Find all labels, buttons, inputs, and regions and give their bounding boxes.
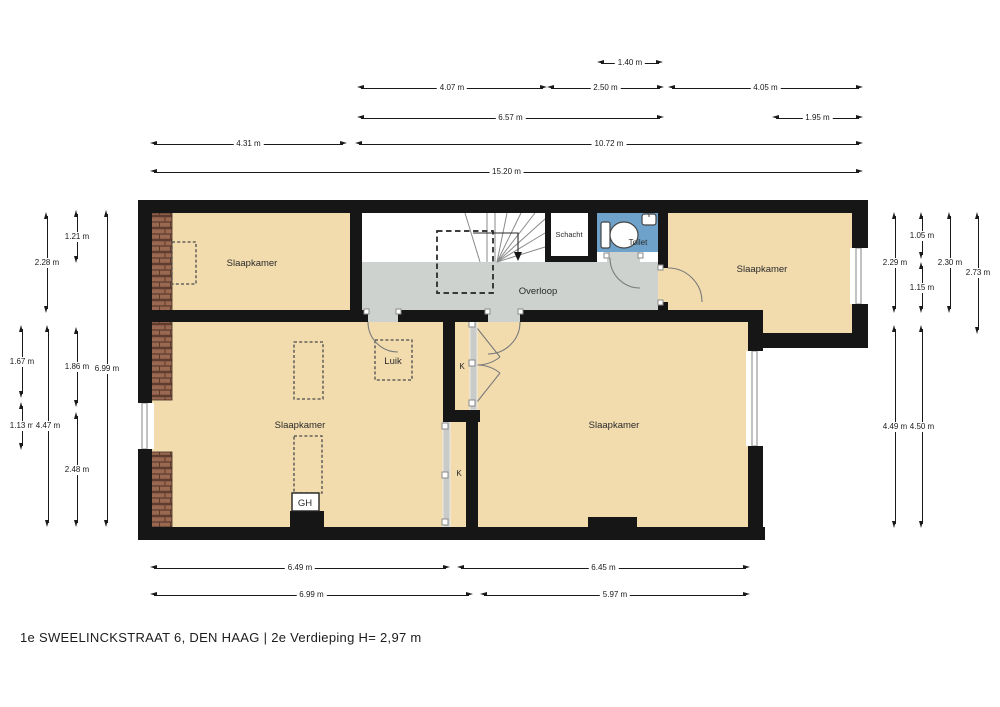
dimension-right-19: 2.30 m (945, 212, 955, 313)
dimension-arrowhead (45, 520, 49, 527)
dimension-arrowhead (892, 212, 896, 219)
door-opening (658, 268, 668, 302)
dimension-label: 1.05 m (907, 231, 937, 241)
brick-chimney (150, 213, 172, 527)
dimension-arrowhead (466, 592, 473, 596)
dimension-arrowhead (74, 256, 78, 263)
dimension-right-23: 4.50 m (917, 325, 927, 528)
dimension-top-0: 1.40 m (597, 58, 663, 68)
dimension-arrowhead (743, 592, 750, 596)
dimension-arrowhead (657, 115, 664, 119)
dimension-label: 5.97 m (600, 590, 630, 600)
dimension-arrowhead (44, 306, 48, 313)
dimension-label: 2.50 m (590, 83, 620, 93)
dimension-arrowhead (340, 141, 347, 145)
dimension-label: 1.21 m (62, 232, 92, 242)
dimension-arrowhead (19, 391, 23, 398)
dimension-left-12: 1.67 m (17, 325, 27, 398)
shaft-label: Schacht (555, 230, 583, 239)
dimension-arrowhead (150, 565, 157, 569)
dimension-top-7: 10.72 m (355, 139, 863, 149)
floor-plan: GH Slaapkamer Slaapkamer Slaapkamer Slaa… (0, 0, 1000, 707)
dimension-arrowhead (480, 592, 487, 596)
dimension-arrowhead (457, 565, 464, 569)
dimension-label: 6.45 m (588, 563, 618, 573)
dimension-label: 2.48 m (62, 465, 92, 475)
dimension-arrowhead (743, 565, 750, 569)
dimension-label: 6.99 m (296, 590, 326, 600)
chimney-block (588, 517, 637, 529)
dimension-arrowhead (856, 141, 863, 145)
dimension-bottom-24: 6.49 m (150, 563, 450, 573)
dimension-top-2: 2.50 m (547, 83, 664, 93)
dimension-label: 2.30 m (935, 258, 965, 268)
dimension-right-20: 2.73 m (973, 212, 983, 334)
landing-label: Overloop (519, 286, 558, 297)
dimension-left-11: 6.99 m (102, 210, 112, 527)
dimension-top-5: 1.95 m (772, 113, 863, 123)
dimension-label: 1.40 m (615, 58, 645, 68)
dimension-label: 4.49 m (880, 422, 910, 432)
dimension-label: 4.05 m (750, 83, 780, 93)
dimension-arrowhead (772, 115, 779, 119)
dimension-arrowhead (19, 402, 23, 409)
dimension-arrowhead (74, 210, 78, 217)
dimension-bottom-27: 5.97 m (480, 590, 750, 600)
dimension-arrowhead (443, 565, 450, 569)
dimension-arrowhead (892, 325, 896, 332)
dimension-arrowhead (547, 85, 554, 89)
dimension-arrowhead (104, 210, 108, 217)
dimension-left-10: 2.28 m (42, 212, 52, 313)
dimension-label: 4.50 m (907, 422, 937, 432)
dimension-label: 4.31 m (233, 139, 263, 149)
dimension-bottom-26: 6.99 m (150, 590, 473, 600)
floorplan-page: GH Slaapkamer Slaapkamer Slaapkamer Slaa… (0, 0, 1000, 707)
dimension-label: 6.99 m (92, 364, 122, 374)
dimension-label: 1.15 m (907, 283, 937, 293)
toilet-tank-icon (601, 222, 610, 248)
bedroom-top-right-label: Slaapkamer (737, 264, 788, 275)
bedroom-top-left-label: Slaapkamer (227, 258, 278, 269)
dimension-label: 2.73 m (963, 268, 993, 278)
dimension-arrowhead (74, 412, 78, 419)
dimension-label: 2.28 m (32, 258, 62, 268)
plan-title: 1e SWEELINCKSTRAAT 6, DEN HAAG | 2e Verd… (20, 630, 422, 645)
closet-upper-label: K (459, 362, 465, 371)
dimension-left-15: 4.47 m (43, 325, 53, 527)
dimension-left-9: 1.21 m (72, 210, 82, 263)
dimension-bottom-25: 6.45 m (457, 563, 750, 573)
dimension-arrowhead (919, 262, 923, 269)
dimension-arrowhead (892, 521, 896, 528)
dimension-left-13: 1.86 m (72, 327, 82, 407)
dimension-left-14: 1.13 m (17, 402, 27, 450)
dimension-left-16: 2.48 m (72, 412, 82, 527)
door-opening (488, 310, 520, 322)
door-opening (607, 252, 640, 262)
chimney-block (290, 511, 324, 527)
dimension-arrowhead (104, 520, 108, 527)
hatch-label: Luik (384, 356, 402, 367)
dimension-arrowhead (74, 400, 78, 407)
dimension-label: 4.47 m (33, 421, 63, 431)
dimension-arrowhead (919, 521, 923, 528)
bedroom-bottom-left-label: Slaapkamer (275, 420, 326, 431)
door-opening (368, 310, 398, 322)
dimension-label: 1.67 m (7, 357, 37, 367)
dimension-arrowhead (357, 115, 364, 119)
dimension-arrowhead (856, 85, 863, 89)
dimension-arrowhead (150, 141, 157, 145)
dimension-arrowhead (947, 306, 951, 313)
dimension-right-21: 1.15 m (917, 262, 927, 313)
dimension-top-3: 4.05 m (668, 83, 863, 93)
dimension-label: 4.07 m (437, 83, 467, 93)
bedroom-bottom-right-label: Slaapkamer (589, 420, 640, 431)
closet-lower-label: K (456, 469, 462, 478)
dimension-arrowhead (975, 327, 979, 334)
dimension-arrowhead (19, 443, 23, 450)
dimension-arrowhead (668, 85, 675, 89)
dimension-arrowhead (74, 327, 78, 334)
toilet-label: Toilet (629, 238, 648, 247)
dimension-arrowhead (19, 325, 23, 332)
dimension-arrowhead (919, 306, 923, 313)
dimension-top-1: 4.07 m (357, 83, 547, 93)
dimension-arrowhead (150, 169, 157, 173)
dimension-label: 15.20 m (489, 167, 524, 177)
dimension-arrowhead (657, 85, 664, 89)
dimension-arrowhead (919, 325, 923, 332)
dimension-arrowhead (856, 169, 863, 173)
dimension-top-4: 6.57 m (357, 113, 664, 123)
dimension-arrowhead (540, 85, 547, 89)
dimension-arrowhead (919, 252, 923, 259)
dimension-right-22: 4.49 m (890, 325, 900, 528)
dimension-arrowhead (892, 306, 896, 313)
dimension-arrowhead (975, 212, 979, 219)
geyser-box: GH (292, 493, 319, 511)
dimension-top-8: 15.20 m (150, 167, 863, 177)
dimension-label: 2.29 m (880, 258, 910, 268)
geyser-label: GH (298, 498, 312, 509)
dimension-right-18: 2.29 m (890, 212, 900, 313)
dimension-right-17: 1.05 m (917, 212, 927, 259)
landing-floor (360, 262, 658, 310)
dimension-arrowhead (44, 212, 48, 219)
dimension-arrowhead (597, 60, 604, 64)
dimension-arrowhead (74, 520, 78, 527)
dimension-label: 1.86 m (62, 362, 92, 372)
dimension-arrowhead (357, 85, 364, 89)
dimension-top-6: 4.31 m (150, 139, 347, 149)
dimension-arrowhead (355, 141, 362, 145)
dimension-arrowhead (45, 325, 49, 332)
dimension-label: 6.57 m (495, 113, 525, 123)
dimension-label: 10.72 m (592, 139, 627, 149)
dimension-label: 6.49 m (285, 563, 315, 573)
dimension-arrowhead (947, 212, 951, 219)
dimension-arrowhead (856, 115, 863, 119)
dimension-arrowhead (919, 212, 923, 219)
dimension-label: 1.95 m (802, 113, 832, 123)
dimension-arrowhead (656, 60, 663, 64)
dimension-arrowhead (150, 592, 157, 596)
